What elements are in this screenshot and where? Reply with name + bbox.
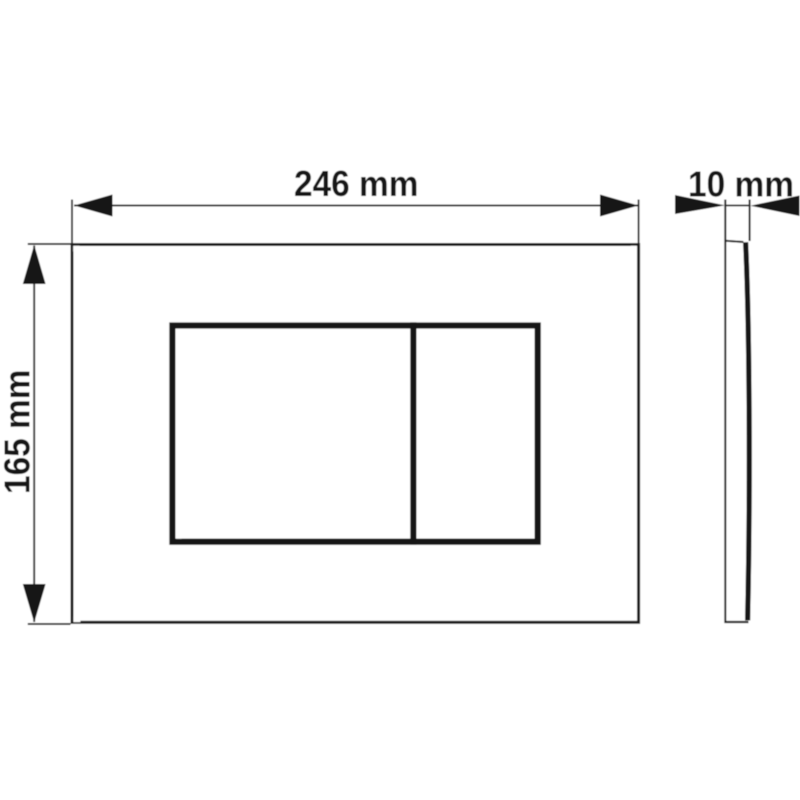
svg-text:246 mm: 246 mm (294, 163, 419, 204)
svg-text:165 mm: 165 mm (0, 370, 38, 495)
svg-text:10 mm: 10 mm (688, 164, 794, 205)
